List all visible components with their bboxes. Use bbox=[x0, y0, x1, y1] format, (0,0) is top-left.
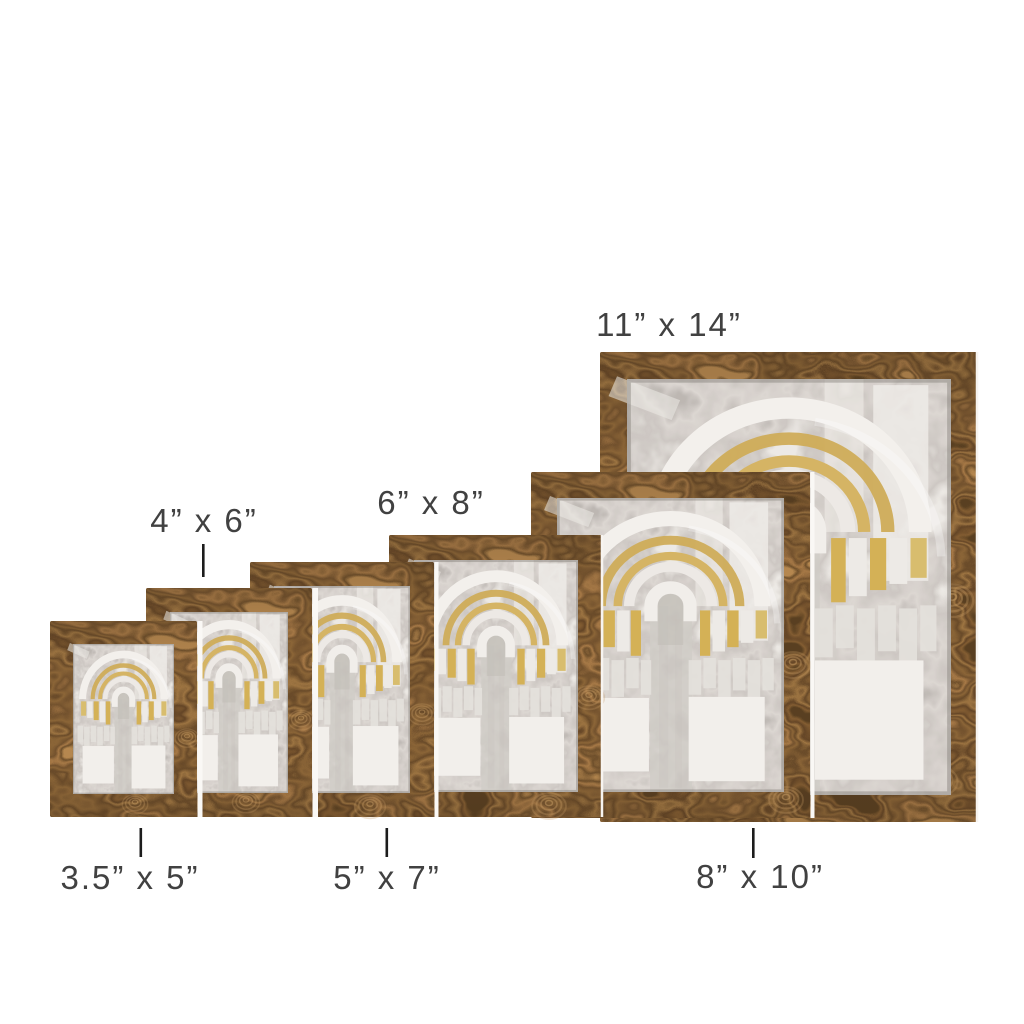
svg-text:4” x 6”: 4” x 6” bbox=[150, 502, 258, 539]
svg-text:11” x 14”: 11” x 14” bbox=[596, 306, 742, 343]
svg-text:8” x 10”: 8” x 10” bbox=[696, 858, 824, 895]
svg-text:5” x 7”: 5” x 7” bbox=[333, 859, 441, 896]
svg-text:3.5” x 5”: 3.5” x 5” bbox=[60, 859, 199, 896]
svg-text:6” x 8”: 6” x 8” bbox=[377, 484, 485, 521]
